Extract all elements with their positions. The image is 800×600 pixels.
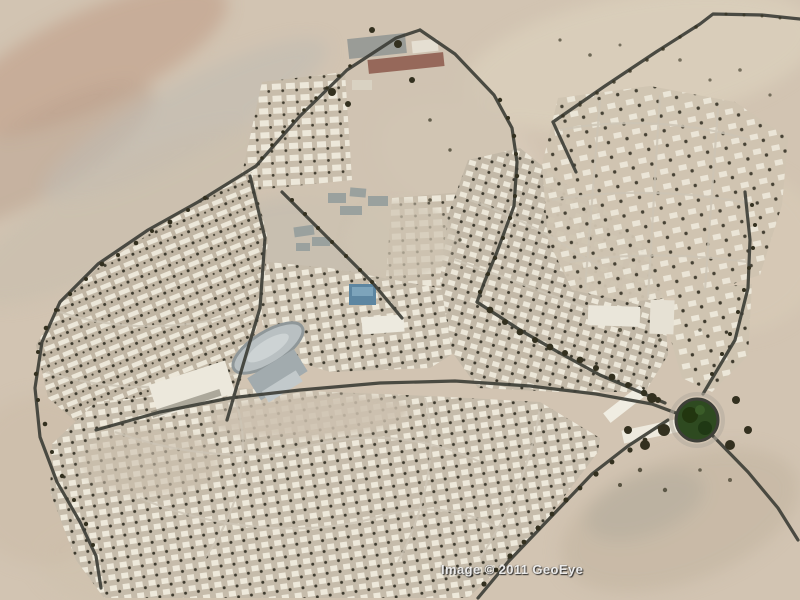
pool-highlight	[352, 287, 373, 296]
white-building-below-pool	[361, 315, 404, 335]
roundabout	[671, 394, 723, 446]
imagery-copyright-watermark: Image © 2011 GeoEye	[441, 562, 583, 577]
satellite-map-canvas	[0, 0, 800, 600]
satellite-image-viewport: Image © 2011 GeoEye	[0, 0, 800, 600]
roundabout-green-island	[676, 399, 718, 441]
east-white-complex-a	[588, 305, 641, 327]
east-white-complex-b	[649, 300, 674, 335]
